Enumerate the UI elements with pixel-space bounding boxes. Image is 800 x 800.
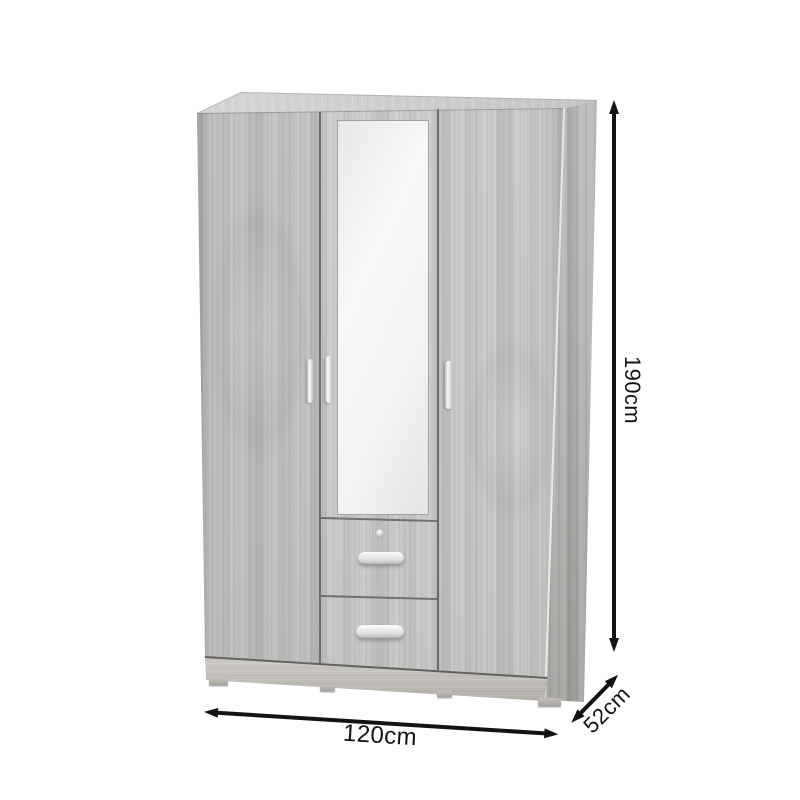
drawer-1-handle [358,552,404,565]
left-door-handle [307,359,313,403]
arrow-head-icon [544,728,559,739]
depth-dimension-label: 52cm [578,681,636,739]
keyhole [376,529,384,537]
drawer-2-handle [356,625,404,639]
foot-front-left [209,678,228,685]
arrow-shaft [612,107,615,645]
product-dimension-image: 190cm 120cm 52cm [0,0,800,800]
arrow-head-icon [610,638,620,652]
foot-middle-right [437,691,452,697]
mirror [337,120,429,515]
foot-middle-left [320,685,335,691]
foot-front-right [538,698,561,706]
door-gap-left [319,112,321,663]
right-door-handle [445,361,452,409]
middle-door-handle [325,356,332,403]
width-dimension-label: 120cm [342,720,418,753]
height-dimension-label: 190cm [619,356,645,424]
door-gap-right [437,109,439,670]
